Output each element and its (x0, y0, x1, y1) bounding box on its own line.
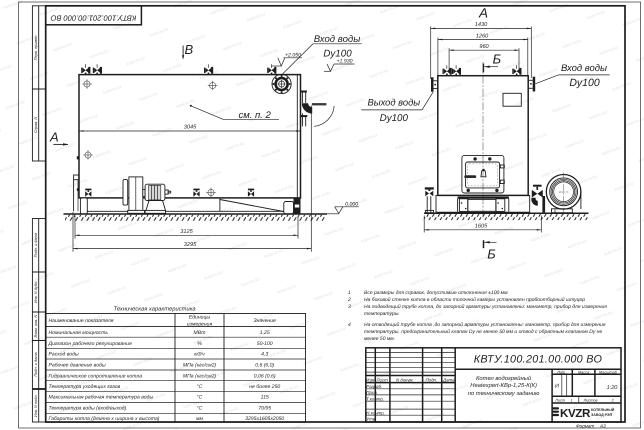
svg-text:3: 3 (348, 304, 351, 310)
svg-text:2: 2 (347, 297, 351, 303)
svg-text:КВТУ.100.201.00.000 ВО: КВТУ.100.201.00.000 ВО (51, 14, 137, 23)
svg-text:Номинальная мощность: Номинальная мощность (49, 330, 109, 336)
svg-text:Справ. N: Справ. N (33, 117, 38, 133)
svg-text:Пров.: Пров. (366, 390, 378, 395)
svg-text:Лист: Лист (376, 377, 389, 382)
svg-text:мм: мм (196, 416, 203, 422)
svg-text:115: 115 (261, 395, 269, 401)
svg-text:И: И (555, 384, 559, 390)
svg-text:Расход воды: Расход воды (49, 352, 79, 358)
svg-text:м3/ч: м3/ч (194, 352, 205, 358)
svg-text:Масса: Масса (578, 370, 589, 374)
svg-text:A3: A3 (599, 424, 606, 429)
svg-text:Вход воды: Вход воды (561, 63, 607, 74)
svg-text:Инв. N подл.: Инв. N подл. (33, 394, 38, 417)
svg-text:Dy100: Dy100 (569, 77, 600, 89)
svg-text:Рабочее давление воды: Рабочее давление воды (49, 362, 106, 368)
svg-text:70/95: 70/95 (258, 405, 271, 411)
svg-text:KVZR: KVZR (560, 407, 591, 420)
svg-text:1: 1 (570, 399, 572, 403)
svg-text:1605: 1605 (475, 223, 488, 229)
svg-text:ВР80-75: ВР80-75 (559, 191, 569, 194)
svg-text:1: 1 (348, 290, 351, 296)
svg-text:Dy100: Dy100 (380, 113, 409, 124)
svg-text:Взам. инв. N: Взам. инв. N (33, 315, 38, 338)
svg-text:°С: °С (197, 384, 203, 390)
svg-text:0,06 (0,6): 0,06 (0,6) (254, 373, 276, 379)
svg-text:3295х1605х2050: 3295х1605х2050 (245, 416, 284, 422)
svg-text:по техническому заданию: по техническому заданию (468, 390, 540, 397)
svg-text:1430: 1430 (475, 22, 488, 28)
svg-text:Изм: Изм (366, 377, 374, 382)
svg-text:°С: °С (197, 405, 203, 411)
svg-text:Температура воды (вход/выход): Температура воды (вход/выход) (49, 405, 127, 411)
svg-text:Вход воды: Вход воды (314, 34, 361, 45)
svg-text:Б: Б (493, 52, 502, 67)
svg-text:КОТЕЛЬНЫЙ: КОТЕЛЬНЫЙ (591, 407, 615, 412)
svg-text:4: 4 (348, 322, 351, 328)
svg-text:Значение: Значение (254, 318, 277, 324)
svg-text:3295: 3295 (184, 242, 197, 248)
svg-text:температуры, предохранительный: температуры, предохранительный клапан Dу… (364, 329, 602, 335)
svg-text:Разраб.: Разраб. (366, 384, 382, 389)
svg-text:0.000: 0.000 (345, 201, 358, 207)
svg-text:°С: °С (197, 395, 203, 401)
svg-text:+1.930: +1.930 (336, 59, 352, 65)
svg-text:Б: Б (487, 247, 496, 262)
svg-text:1260: 1260 (476, 33, 489, 39)
svg-text:КВТУ.100.201.00.000 ВО: КВТУ.100.201.00.000 ВО (474, 353, 603, 365)
svg-text:960: 960 (479, 44, 489, 50)
svg-text:3045: 3045 (184, 125, 197, 131)
svg-text:ЗАВОД РЭП: ЗАВОД РЭП (591, 413, 613, 417)
svg-text:Т.контр.: Т.контр. (366, 396, 384, 401)
svg-text:МПа (кгс/см2): МПа (кгс/см2) (183, 373, 217, 379)
svg-text:На отводящий трубе котла ,до з: На отводящий трубе котла ,до запорной ар… (364, 322, 606, 328)
svg-text:Выход воды: Выход воды (367, 97, 420, 108)
svg-text:МПа (кгс/см2): МПа (кгс/см2) (183, 362, 217, 368)
svg-text:Максимальная рабочая температу: Максимальная рабочая температура воды (49, 395, 154, 401)
svg-text:В: В (185, 42, 194, 57)
svg-text:Heatexpert-КВр-1,25-К(К): Heatexpert-КВр-1,25-К(К) (470, 382, 537, 389)
svg-text:Инв. N дубл.: Инв. N дубл. (33, 281, 38, 304)
svg-text:Котел водогрейный: Котел водогрейный (476, 375, 532, 382)
svg-text:измерения: измерения (187, 321, 213, 327)
svg-text:Масштаб: Масштаб (599, 370, 618, 374)
svg-text:На подводящий трубе котла, до: На подводящий трубе котла, до запорной а… (364, 304, 607, 310)
svg-text:Лист: Лист (554, 399, 565, 403)
svg-text:Гидравлическое сопротивление к: Гидравлическое сопротивление котла (49, 373, 143, 379)
svg-text:1,25: 1,25 (260, 330, 270, 336)
svg-text:+2.050: +2.050 (285, 52, 301, 58)
svg-text:4,3: 4,3 (261, 352, 268, 358)
svg-text:1:20: 1:20 (607, 385, 619, 391)
svg-text:А: А (478, 6, 488, 21)
svg-text:0,6 (6,0): 0,6 (6,0) (255, 362, 274, 368)
svg-text:Подп.: Подп. (426, 377, 438, 382)
svg-text:50-100: 50-100 (257, 341, 273, 347)
svg-text:Н.контр.: Н.контр. (366, 410, 385, 415)
svg-text:Техническая характеристика: Техническая характеристика (114, 307, 197, 313)
svg-text:Листов: Листов (583, 399, 598, 403)
svg-text:Все размеры для справок, допус: Все размеры для справок, допустимые откл… (364, 290, 509, 296)
svg-text:На боковой стенке котла в обла: На боковой стенке котла в области топочн… (364, 297, 585, 303)
svg-text:Диапазон рабочего регулировани: Диапазон рабочего регулирования (48, 341, 132, 347)
svg-text:Подп. и дата: Подп. и дата (33, 232, 38, 257)
svg-text:N докум.: N докум. (396, 377, 414, 382)
svg-text:Подп. и дата: Подп. и дата (33, 351, 38, 376)
svg-text:МВт: МВт (194, 330, 206, 336)
svg-text:Утв.: Утв. (366, 417, 376, 422)
svg-text:%: % (197, 341, 202, 347)
svg-text:Дата: Дата (442, 377, 455, 382)
svg-text:Лит.: Лит. (556, 370, 566, 374)
svg-text:см. п. 2: см. п. 2 (239, 110, 272, 121)
svg-text:Температура уходящих газов: Температура уходящих газов (49, 384, 121, 390)
svg-text:не более 250: не более 250 (249, 384, 280, 390)
svg-text:3125: 3125 (180, 229, 193, 235)
svg-text:менее 50 мм.: менее 50 мм. (364, 336, 395, 342)
svg-text:Наименование показателя: Наименование показателя (49, 318, 114, 324)
svg-text:Единицы: Единицы (189, 315, 211, 321)
svg-text:Габариты котла (длинна х ширин: Габариты котла (длинна х ширина х высота… (49, 416, 160, 422)
svg-text:Формат: Формат (576, 424, 594, 429)
svg-text:Перв. примен.: Перв. примен. (33, 34, 38, 60)
svg-text:А: А (49, 129, 59, 144)
svg-text:температуры.: температуры. (364, 311, 400, 317)
